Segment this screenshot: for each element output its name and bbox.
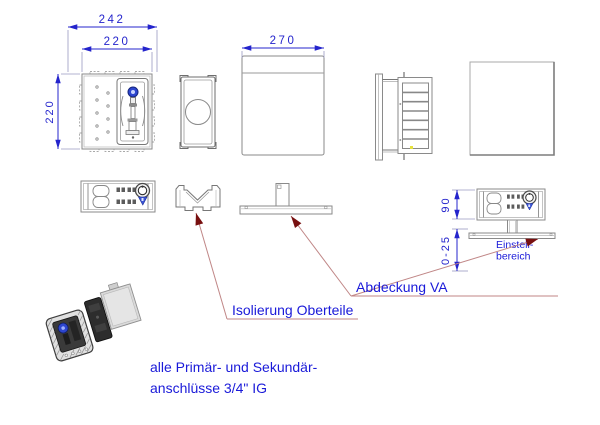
technical-drawing-sheet: 242 220 220 270 bbox=[0, 0, 600, 425]
dimension-0-25-text: 0-25 bbox=[440, 235, 452, 265]
note-line2: anschlüsse 3/4" IG bbox=[150, 380, 267, 396]
dimension-220-width: 220 bbox=[82, 36, 152, 72]
base-plate bbox=[469, 233, 555, 239]
note-line1: alle Primär- und Sekundär- bbox=[150, 359, 318, 375]
adjustment-label-line2: bereich bbox=[496, 251, 531, 263]
connection-note: alle Primär- und Sekundär- anschlüsse 3/… bbox=[150, 359, 318, 396]
cover-side-view bbox=[240, 184, 332, 215]
adjustment-range-label: Einstell- bereich bbox=[496, 239, 534, 263]
box-top-view bbox=[81, 181, 155, 212]
rail-frame bbox=[398, 78, 432, 154]
insulation-upper-part bbox=[176, 186, 220, 211]
cover-label: Abdeckung VA bbox=[356, 279, 448, 295]
dimension-242-text: 242 bbox=[99, 14, 126, 26]
insulation-label: Isolierung Oberteile bbox=[232, 302, 354, 318]
dimension-220-height: 220 bbox=[44, 74, 80, 149]
wall-mount-side-view bbox=[376, 72, 433, 160]
cover-front-view bbox=[242, 56, 324, 155]
valve-chamber bbox=[117, 79, 148, 145]
side-view-box bbox=[180, 76, 216, 149]
dimension-220-height-text: 220 bbox=[44, 99, 56, 123]
dimension-90: 90 bbox=[440, 190, 475, 219]
insulation-callout: Isolierung Oberteile bbox=[196, 213, 358, 319]
front-view-box bbox=[80, 72, 155, 152]
cover-plate-view bbox=[470, 62, 554, 155]
dimension-270: 270 bbox=[242, 35, 324, 58]
dimension-220-width-text: 220 bbox=[104, 36, 131, 48]
exploded-housing bbox=[45, 309, 94, 362]
dimension-270-text: 270 bbox=[270, 35, 297, 47]
drawing-canvas: 242 220 220 270 bbox=[0, 0, 600, 425]
adjustment-label-line1: Einstell- bbox=[496, 239, 534, 251]
adjustable-assembly-view bbox=[469, 189, 555, 239]
exploded-view bbox=[45, 279, 141, 362]
adjustment-stem bbox=[508, 220, 518, 233]
dimension-90-text: 90 bbox=[440, 196, 452, 212]
